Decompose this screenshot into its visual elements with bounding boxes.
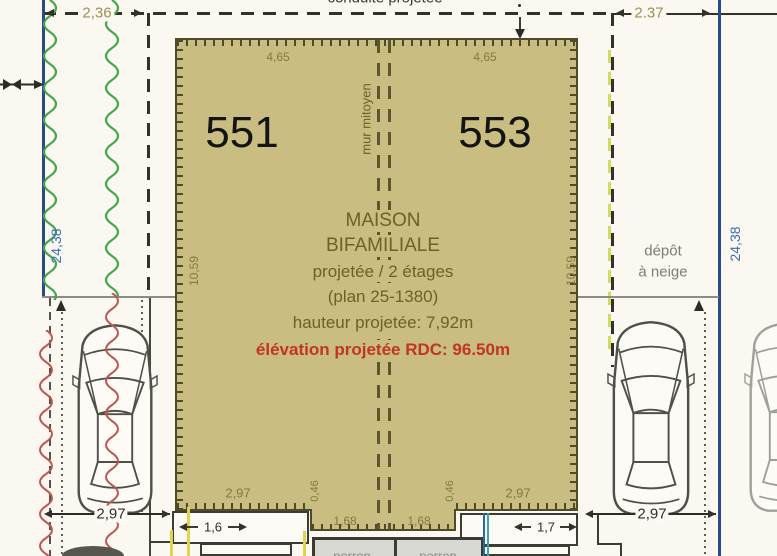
dim-arrow	[134, 9, 142, 17]
dim-depth-right: 10,59	[564, 256, 578, 286]
car-icon-right	[607, 314, 695, 522]
up-arrow-marker-left	[56, 300, 66, 311]
wall-hatch-bottom-right	[456, 503, 576, 509]
party-wall-line-b	[388, 40, 391, 529]
porch-dim-right: 1,7	[537, 520, 555, 535]
yellow-utility-stub-a	[170, 530, 173, 556]
dim-seg	[186, 526, 198, 528]
building-title-line1: MAISON	[343, 210, 424, 232]
dim-bottom-right: 2,97	[505, 486, 530, 501]
building-info-line3: projetée / 2 étages	[310, 262, 457, 282]
clipped-boundary-label: conduite projetée	[327, 0, 442, 7]
dim-top-left: 2,36	[79, 5, 114, 22]
step-edge-right-h	[597, 543, 622, 545]
dim-seg	[521, 526, 531, 528]
dim-entry-right: 1,68	[407, 514, 430, 528]
step-left	[200, 543, 292, 556]
teal-service-line	[487, 513, 489, 556]
dim-arrow	[162, 510, 170, 518]
dim-depth-left: 10,59	[187, 256, 201, 286]
perron-divider	[394, 537, 397, 556]
wall-hatch-bottom-left	[177, 503, 310, 509]
party-wall-label: mur mitoyen	[359, 83, 374, 155]
building-elevation-note: élévation projetée RDC: 96.50m	[253, 340, 513, 360]
dim-arrow	[239, 523, 247, 531]
yellow-utility-stub-c	[303, 531, 306, 556]
dim-offset-right: 0,46	[444, 480, 456, 501]
building-entry-extension	[310, 509, 456, 531]
car-icon-ghost-right	[744, 314, 777, 520]
step-edge-right-v1	[597, 515, 599, 545]
building-title-line2: BIFAMILIALE	[323, 235, 443, 257]
blue-utility-line-right	[718, 0, 721, 556]
perron-label-right: perron	[419, 549, 457, 556]
point-dot	[518, 4, 521, 7]
parcel-number-553: 553	[458, 108, 531, 158]
yellow-utility-stub-b	[187, 507, 190, 556]
projected-boundary-top-dashed-line	[43, 12, 612, 15]
dim-width-top-left: 4,65	[266, 50, 289, 64]
perron-label-left: perron	[333, 549, 371, 556]
dim-entry-left: 1,68	[333, 514, 356, 528]
parcel-number-551: 551	[205, 108, 278, 158]
dim-bottom-left: 2,97	[225, 486, 250, 501]
step-edge-left-h	[150, 541, 172, 543]
snow-deposit-label-line2: à neige	[638, 264, 687, 281]
dim-offset-left: 0,46	[309, 480, 321, 501]
blue-service-line	[483, 513, 485, 556]
dim-arrow	[46, 9, 54, 17]
parking-dotted-line-right	[704, 312, 706, 556]
step-right	[478, 545, 570, 556]
step-edge-right-v2	[620, 543, 622, 556]
dim-arrow	[616, 9, 624, 17]
building-info-line4: (plan 25-1380)	[325, 287, 442, 307]
boundary-dashed-line-left	[147, 13, 150, 298]
terrain-line-right	[575, 296, 719, 298]
dim-arrow	[585, 510, 593, 518]
side-length-right: 24,38	[727, 226, 743, 261]
survey-point-marker	[0, 77, 46, 93]
wall-hatch-left	[177, 40, 183, 509]
snow-deposit-label-line1: dépôt	[644, 243, 682, 260]
dim-arrow	[708, 510, 716, 518]
dim-arrow	[702, 9, 710, 17]
dim-arrow	[569, 523, 577, 531]
parking-width-right: 2,97	[635, 506, 668, 523]
dim-width-top-right: 4,65	[473, 50, 496, 64]
porch-dim-left: 1,6	[204, 520, 222, 535]
building-info-line5: hauteur projetée: 7,92m	[290, 313, 477, 333]
parking-dotted-line-left	[61, 312, 63, 556]
dim-top-right: 2.37	[631, 5, 666, 22]
dim-arrow	[44, 510, 52, 518]
green-hedge-line-b	[103, 0, 121, 297]
party-wall-line-a	[377, 40, 380, 529]
up-arrow-marker-right	[694, 300, 704, 311]
parking-width-left: 2,97	[94, 506, 127, 523]
red-hedge-line-a	[37, 330, 55, 556]
site-plan: perron perron conduite projetée 2,36 2.3…	[0, 0, 777, 556]
side-length-left: 24,38	[48, 228, 64, 263]
